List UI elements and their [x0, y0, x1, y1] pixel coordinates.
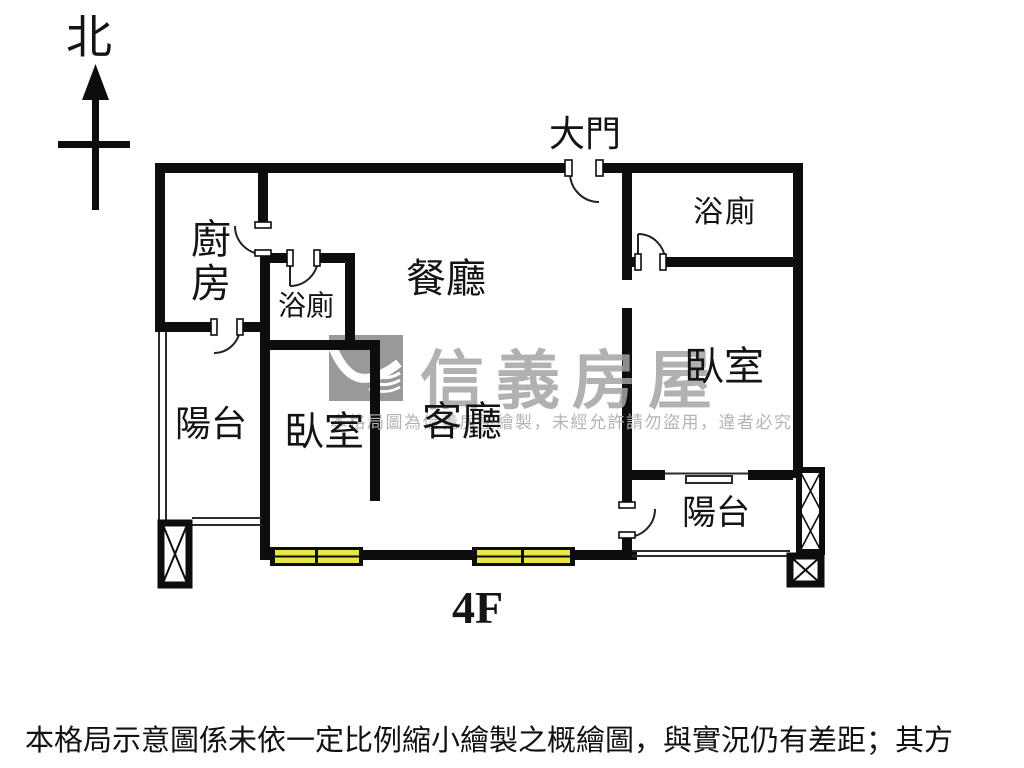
floor-label: 4F: [452, 584, 503, 632]
watermark-notice: 本格局圖為信義房屋繪製，未經允許請勿盜用，違者必究: [330, 408, 793, 433]
bedroom-left-label: 臥室: [284, 411, 364, 453]
bath-left-top-wall-a: [260, 253, 288, 263]
kitchen-door-jamb-top: [255, 222, 271, 228]
center-wall-lower: [622, 538, 632, 560]
north-arrow: [58, 64, 130, 210]
kitchen-door-arc: [235, 226, 263, 254]
bathroom-left-label: 浴廁: [278, 292, 334, 321]
left-wall: [155, 163, 165, 332]
main-door-jamb-left: [565, 160, 572, 176]
bottom-wall-b: [363, 550, 472, 560]
kitchen-bottom-wall-right: [240, 322, 268, 332]
main-door-label: 大門: [549, 116, 621, 154]
top-wall-right: [600, 163, 803, 173]
bedroom-right-bottom-wall-b: [748, 470, 793, 480]
bottom-wall-a: [260, 550, 275, 560]
window-center: [472, 547, 575, 566]
floorplan-page: 信義房屋 本格局圖為信義房屋繪製，未經允許請勿盜用，違者必究 北 大門 廚房 浴…: [0, 0, 1024, 768]
bathroom-top-right-label: 浴廁: [693, 197, 757, 229]
bath-left-door-jamb-left: [287, 250, 293, 266]
dining-room-label: 餐廳: [406, 258, 486, 300]
sinyi-logo-icon: [329, 335, 403, 401]
disclaimer-line-1: 本格局示意圖係未依一定比例縮小繪製之概繪圖，與實況仍有差距；其方: [25, 722, 1015, 760]
main-door-jamb-right: [596, 160, 603, 176]
kitchen-balcony-door-jamb-right: [237, 319, 243, 335]
bath-right-bottom-wall: [663, 257, 793, 267]
kitchen-label: 廚房: [191, 218, 239, 306]
bath-right-door-jamb-right: [660, 254, 666, 270]
top-wall-left: [155, 163, 568, 173]
kitchen-balcony-door-arc: [214, 327, 240, 353]
balcony-door-jamb-bottom: [619, 532, 635, 538]
bath-left-door-arc: [290, 258, 318, 286]
kitchen-balcony-door-jamb-left: [211, 319, 217, 335]
bath-left-door-jamb-right: [314, 250, 320, 266]
bath-right-door-arc: [638, 234, 665, 262]
shaft-right-bottom: [790, 556, 821, 584]
living-room-label: 客廳: [422, 401, 502, 443]
bedroom-right-bottom-wall-a: [622, 470, 665, 480]
window-left: [270, 547, 363, 566]
bath-left-top-wall-b: [317, 253, 355, 263]
kitchen-bottom-wall-left: [155, 322, 212, 332]
kitchen-door-jamb-bottom: [255, 250, 271, 256]
disclaimer-text: 本格局示意圖係未依一定比例縮小繪製之概繪圖，與實況仍有差距；其方 位、格局、形狀…: [25, 646, 1015, 768]
kitchen-right-wall: [258, 173, 268, 225]
right-wall: [793, 163, 803, 478]
center-wall-upper: [622, 173, 632, 280]
sliding-window-bedroom-right: [665, 474, 748, 484]
shaft-left: [161, 523, 189, 585]
north-label: 北: [66, 14, 112, 62]
balcony-door-jamb-top: [619, 502, 635, 508]
main-door-arc: [570, 173, 599, 202]
balcony-right-door-arc: [627, 509, 655, 537]
balcony-left-label: 陽台: [175, 406, 247, 444]
bath-right-door-jamb-left: [635, 254, 641, 270]
balcony-right-label: 陽台: [682, 496, 750, 532]
shaft-right-column: [799, 470, 822, 552]
bath-right-bottom-wall-stub: [632, 257, 640, 267]
bedroom-right-label: 臥室: [684, 346, 764, 388]
windows: [270, 474, 748, 567]
left-inner-wall: [260, 253, 270, 560]
bottom-wall-c: [575, 550, 637, 560]
